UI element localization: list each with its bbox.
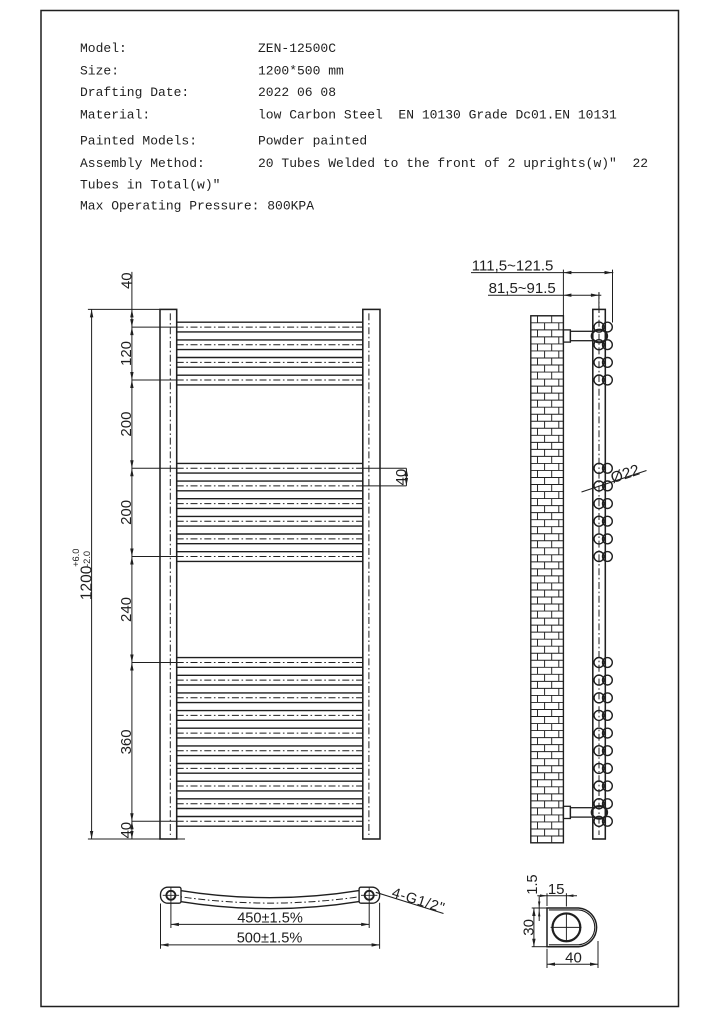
svg-text:2022 06 08: 2022 06 08 (258, 85, 336, 100)
svg-text:1200: 1200 (79, 565, 96, 600)
svg-text:1200*500 mm: 1200*500 mm (258, 64, 344, 79)
svg-text:Size:: Size: (80, 64, 119, 79)
svg-text:Material:: Material: (80, 108, 150, 123)
svg-text:1.5: 1.5 (525, 874, 541, 894)
svg-text:30: 30 (520, 919, 537, 936)
svg-text:81,5~91.5: 81,5~91.5 (489, 280, 556, 297)
svg-text:40: 40 (119, 272, 136, 289)
svg-text:Max Operating Pressure: 800KPA: Max Operating Pressure: 800KPA (80, 198, 314, 213)
svg-text:200: 200 (118, 500, 135, 525)
svg-text:Painted Models:: Painted Models: (80, 134, 197, 149)
svg-text:ZEN-12500C: ZEN-12500C (258, 41, 336, 56)
svg-text:15: 15 (548, 881, 565, 898)
svg-text:360: 360 (118, 729, 135, 754)
svg-text:low Carbon Steel EN 10130 Gra: low Carbon Steel EN 10130 Grade Dc01.EN … (258, 108, 617, 123)
svg-text:450±1.5%: 450±1.5% (237, 911, 303, 927)
svg-text:20 Tubes Welded to the front o: 20 Tubes Welded to the front of 2 uprigh… (258, 156, 648, 171)
svg-text:-2.0: -2.0 (82, 551, 92, 567)
svg-text:500±1.5%: 500±1.5% (237, 931, 303, 947)
svg-text:40: 40 (118, 822, 135, 839)
svg-text:40: 40 (565, 949, 582, 966)
svg-text:40: 40 (393, 469, 410, 486)
svg-text:Drafting Date:: Drafting Date: (80, 85, 189, 100)
svg-text:+6.0: +6.0 (71, 549, 81, 567)
svg-text:Tubes in Total(w)″: Tubes in Total(w)″ (80, 177, 220, 192)
svg-text:Powder painted: Powder painted (258, 134, 367, 149)
svg-text:120: 120 (118, 341, 135, 366)
svg-text:Model:: Model: (80, 41, 127, 56)
svg-text:Assembly Method:: Assembly Method: (80, 156, 205, 171)
svg-text:240: 240 (118, 597, 135, 622)
svg-text:200: 200 (118, 412, 135, 437)
svg-text:111,5~121.5: 111,5~121.5 (472, 257, 554, 274)
